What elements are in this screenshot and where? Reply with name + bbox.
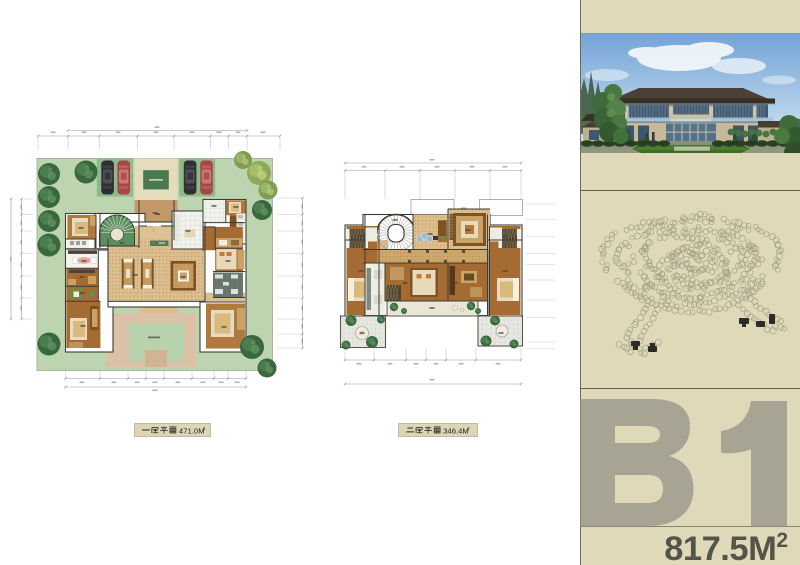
- svg-text:471.0M: 471.0M: [179, 426, 205, 435]
- svg-text:2: 2: [203, 426, 206, 431]
- svg-text:2: 2: [467, 426, 470, 431]
- svg-text:346.4M: 346.4M: [443, 426, 469, 435]
